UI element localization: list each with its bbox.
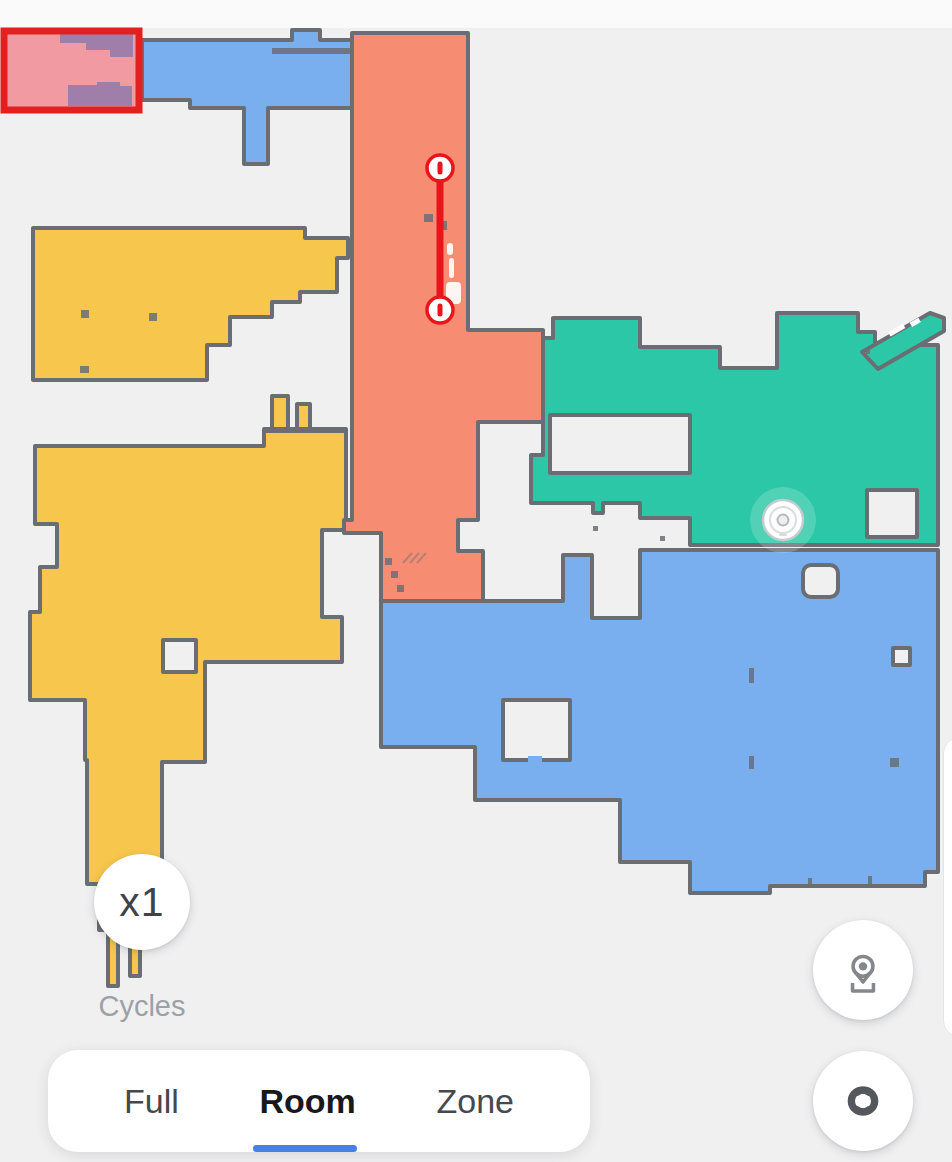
cycles-caption: Cycles <box>72 990 212 1023</box>
debris-dot <box>424 214 433 222</box>
debris-step <box>397 585 404 592</box>
vacuum-map-screen: x1 Cycles Full Room Zone <box>0 0 952 1162</box>
debris-step <box>391 571 398 578</box>
room-teal[interactable] <box>531 313 944 545</box>
cutout-opening <box>528 756 542 762</box>
cycles-button[interactable]: x1 <box>94 854 190 950</box>
furniture-cutout <box>503 700 570 760</box>
clean-trail <box>447 243 453 255</box>
furniture-cutout <box>550 415 690 473</box>
room-blue-top[interactable] <box>142 30 355 164</box>
active-tab-underline <box>253 1145 357 1152</box>
tab-zone[interactable]: Zone <box>437 1082 515 1121</box>
interlocked-loops-icon <box>839 1077 887 1125</box>
map-pin-icon <box>840 947 886 993</box>
robot-center-dot <box>778 515 789 526</box>
furniture-cutout <box>893 648 910 665</box>
debris-dot <box>660 536 665 541</box>
debris-dot <box>81 310 89 318</box>
room-yellow-upper-region[interactable] <box>33 228 348 380</box>
side-panel-edge[interactable] <box>943 737 952 1037</box>
debris-dot <box>868 876 872 884</box>
debris-dot <box>593 526 598 531</box>
room-blue-bottom[interactable] <box>381 550 938 893</box>
debris-dot <box>749 756 754 769</box>
debris-dot <box>80 366 89 373</box>
robot-notch <box>779 533 787 536</box>
debris-dot <box>890 758 899 767</box>
debris-dot <box>866 350 870 354</box>
tab-full[interactable]: Full <box>124 1082 179 1121</box>
room-blue-bottom-region[interactable] <box>381 550 938 893</box>
debris-dot <box>749 668 754 683</box>
clean-mode-tabs: Full Room Zone <box>48 1050 590 1152</box>
robot-marker[interactable] <box>750 487 816 553</box>
tab-room[interactable]: Room <box>259 1082 355 1121</box>
debris-dot <box>149 313 157 321</box>
virtual-wall-endpoint-bar <box>438 304 443 317</box>
top-strip <box>0 0 952 28</box>
map-canvas[interactable] <box>0 0 952 1162</box>
debris-mark <box>272 48 350 54</box>
debris-dot <box>808 878 812 884</box>
cycles-count: x1 <box>119 879 164 926</box>
furniture-cutout <box>803 565 838 597</box>
room-yellow-upper[interactable] <box>33 228 348 380</box>
furniture-cutout <box>867 490 917 537</box>
clean-trail <box>449 258 454 278</box>
map-mode-button[interactable] <box>813 1051 913 1151</box>
room-salmon-corridor[interactable] <box>344 33 543 633</box>
virtual-wall-endpoint-bar <box>438 162 443 175</box>
locate-robot-button[interactable] <box>813 920 913 1020</box>
map-inlet <box>163 640 196 672</box>
debris-step <box>385 558 392 565</box>
selected-zone[interactable] <box>4 31 139 110</box>
